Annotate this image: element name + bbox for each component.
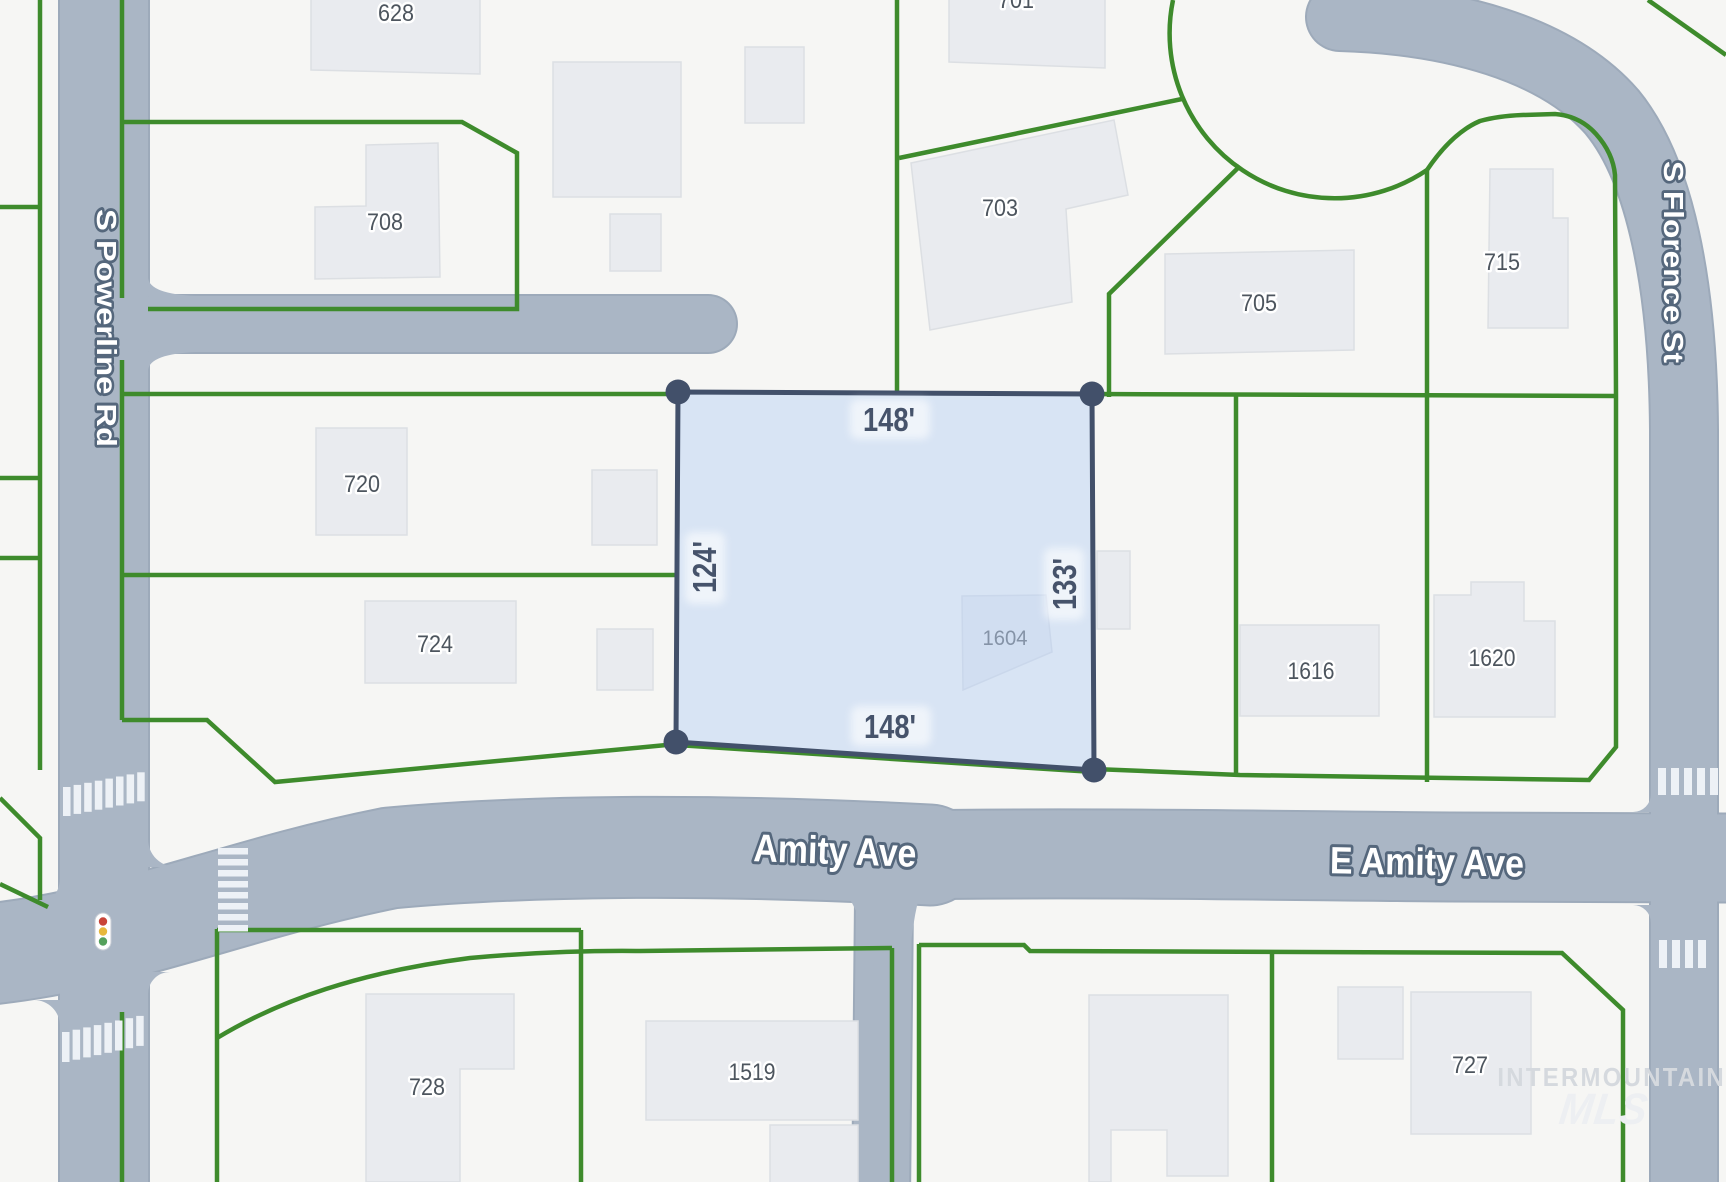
svg-text:715: 715 bbox=[1484, 249, 1520, 276]
svg-text:703: 703 bbox=[982, 195, 1018, 222]
svg-text:705: 705 bbox=[1241, 290, 1277, 317]
svg-text:S Powerline Rd: S Powerline Rd bbox=[91, 209, 122, 447]
svg-text:Amity Ave: Amity Ave bbox=[753, 827, 917, 876]
svg-text:148': 148' bbox=[863, 401, 915, 438]
svg-text:1604: 1604 bbox=[983, 627, 1028, 650]
svg-text:S Florence St: S Florence St bbox=[1658, 161, 1689, 363]
svg-text:708: 708 bbox=[367, 209, 403, 236]
svg-text:133': 133' bbox=[1046, 558, 1083, 610]
svg-text:1620: 1620 bbox=[1469, 645, 1516, 672]
svg-text:720: 720 bbox=[344, 471, 380, 498]
svg-text:727: 727 bbox=[1452, 1052, 1488, 1079]
svg-text:E Amity Ave: E Amity Ave bbox=[1330, 840, 1525, 885]
svg-text:1616: 1616 bbox=[1288, 658, 1335, 685]
svg-text:728: 728 bbox=[409, 1074, 445, 1101]
svg-text:MLS: MLS bbox=[1557, 1085, 1651, 1134]
svg-text:124': 124' bbox=[686, 541, 723, 593]
svg-text:1519: 1519 bbox=[729, 1059, 776, 1086]
svg-text:628: 628 bbox=[378, 0, 414, 27]
svg-text:701: 701 bbox=[998, 0, 1034, 14]
svg-text:148': 148' bbox=[864, 708, 916, 745]
svg-text:724: 724 bbox=[417, 631, 453, 658]
